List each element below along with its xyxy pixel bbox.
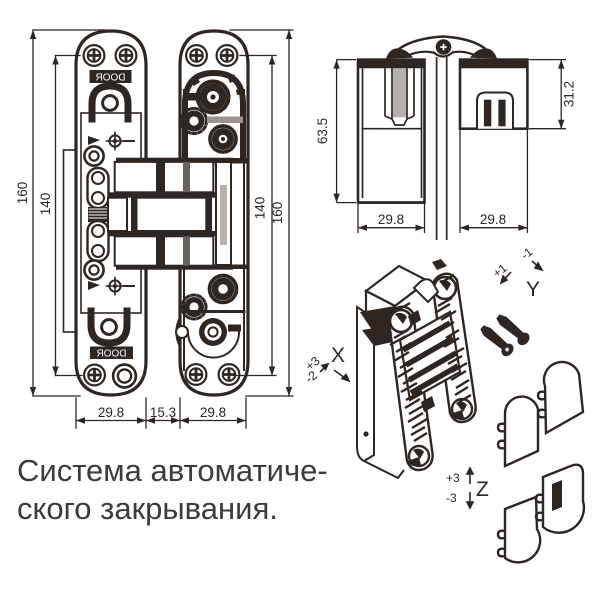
svg-text:31.2: 31.2 <box>562 81 577 107</box>
svg-text:X: X <box>331 344 345 367</box>
svg-text:29.8: 29.8 <box>378 212 404 227</box>
svg-text:29.8: 29.8 <box>480 212 506 227</box>
svg-text:140: 140 <box>38 193 53 216</box>
svg-text:29.8: 29.8 <box>200 405 226 420</box>
svg-text:-1: -1 <box>518 245 535 263</box>
svg-text:-2: -2 <box>302 368 320 386</box>
svg-text:Y: Y <box>526 278 540 301</box>
svg-text:DOOR: DOOR <box>97 349 127 360</box>
svg-text:15.3: 15.3 <box>150 405 176 420</box>
svg-text:160: 160 <box>270 202 285 225</box>
svg-text:140: 140 <box>253 197 268 220</box>
svg-text:160: 160 <box>15 182 30 205</box>
svg-text:DOOR: DOOR <box>96 73 126 84</box>
svg-text:63.5: 63.5 <box>315 118 330 144</box>
svg-text:29.8: 29.8 <box>98 405 124 420</box>
